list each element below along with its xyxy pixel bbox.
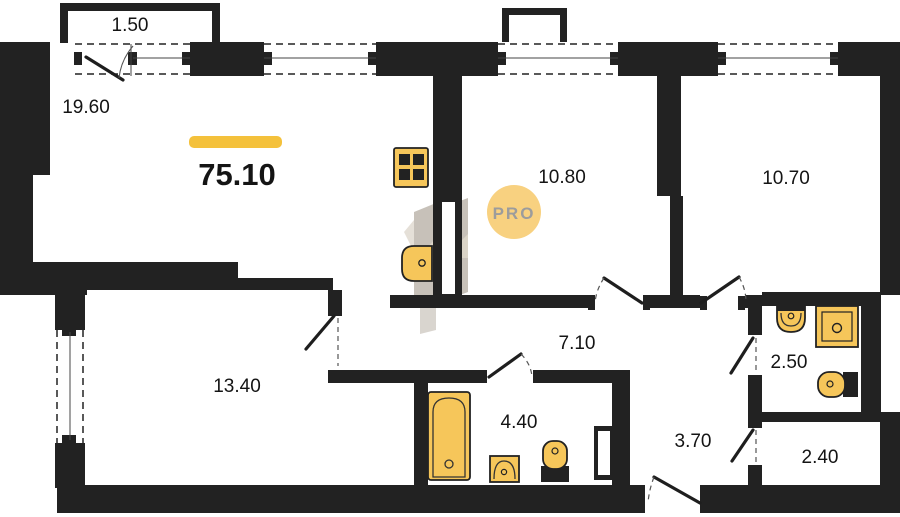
wall-segment: [212, 3, 220, 43]
pro-watermark: PRO: [487, 185, 541, 239]
wall-segment: [0, 175, 33, 263]
door-jamb: [643, 296, 650, 310]
bathroom-sink-icon: [490, 456, 519, 482]
wall-segment: [880, 422, 900, 513]
room-area-label: 4.40: [501, 412, 538, 433]
wall-segment: [657, 76, 681, 196]
wall-segment: [376, 42, 498, 76]
wall-segment: [861, 295, 881, 415]
wall-segment: [238, 278, 333, 290]
pro-watermark-text: PRO: [493, 204, 536, 223]
wall-segment: [670, 196, 683, 308]
wall-segment: [502, 8, 567, 15]
total-area: 75.10: [189, 136, 282, 192]
wall-segment: [0, 42, 50, 175]
wall-segment: [618, 42, 718, 76]
room-area-label: 3.70: [675, 431, 712, 452]
room-area-label: 7.10: [559, 333, 596, 354]
wall-segment: [560, 8, 567, 42]
wall-segment: [748, 308, 762, 335]
wall-segment: [838, 42, 900, 76]
wall-segment: [612, 370, 630, 485]
room-area-label: 2.50: [771, 352, 808, 373]
door-jamb: [588, 296, 595, 310]
wall-segment: [748, 375, 762, 428]
accent-bar: [189, 136, 282, 148]
duct-shaft: [598, 431, 610, 475]
room-area-label: 2.40: [802, 447, 839, 468]
bathtub-icon: [428, 392, 470, 480]
wall-segment: [748, 465, 762, 490]
total-area-label: 75.10: [198, 157, 276, 192]
room-area-label: 19.60: [62, 97, 110, 118]
door-jamb: [480, 370, 487, 383]
wall-segment: [328, 370, 487, 383]
wc-sink-icon: [777, 306, 805, 332]
window-sill: [62, 328, 76, 336]
floor-plan-svg: PRO 75.10 1.50 19.60 10.80 10.70 13.40 7…: [0, 0, 900, 517]
wall-segment: [57, 485, 645, 513]
wall-segment: [190, 42, 264, 76]
kitchen-sink-icon: [402, 246, 432, 281]
wall-segment: [643, 295, 700, 308]
room-area-label: 10.70: [762, 168, 810, 189]
room-area-label: 10.80: [538, 167, 586, 188]
wc-toilet-icon: [818, 372, 858, 397]
window-sill: [74, 52, 82, 65]
wall-segment: [0, 262, 238, 290]
duct-shaft: [442, 202, 455, 294]
wall-segment: [55, 443, 85, 488]
room-area-label: 13.40: [213, 376, 261, 397]
balcony-area-label: 1.50: [112, 15, 149, 36]
wall-segment: [880, 42, 900, 295]
washing-machine-icon: [816, 306, 858, 347]
wall-segment: [745, 295, 762, 308]
wall-segment: [414, 383, 428, 485]
wall-segment: [55, 295, 85, 330]
door-jamb: [533, 370, 540, 383]
wall-segment: [762, 292, 881, 306]
window-sill: [62, 435, 76, 443]
wall-segment: [60, 3, 220, 11]
bathroom-toilet-icon: [541, 441, 569, 482]
wall-segment: [390, 295, 595, 308]
wall-segment: [760, 412, 900, 422]
wall-segment: [700, 485, 900, 513]
door-jamb: [738, 296, 745, 310]
stove-icon: [394, 148, 428, 187]
floor-plan: PRO 75.10 1.50 19.60 10.80 10.70 13.40 7…: [0, 0, 900, 517]
